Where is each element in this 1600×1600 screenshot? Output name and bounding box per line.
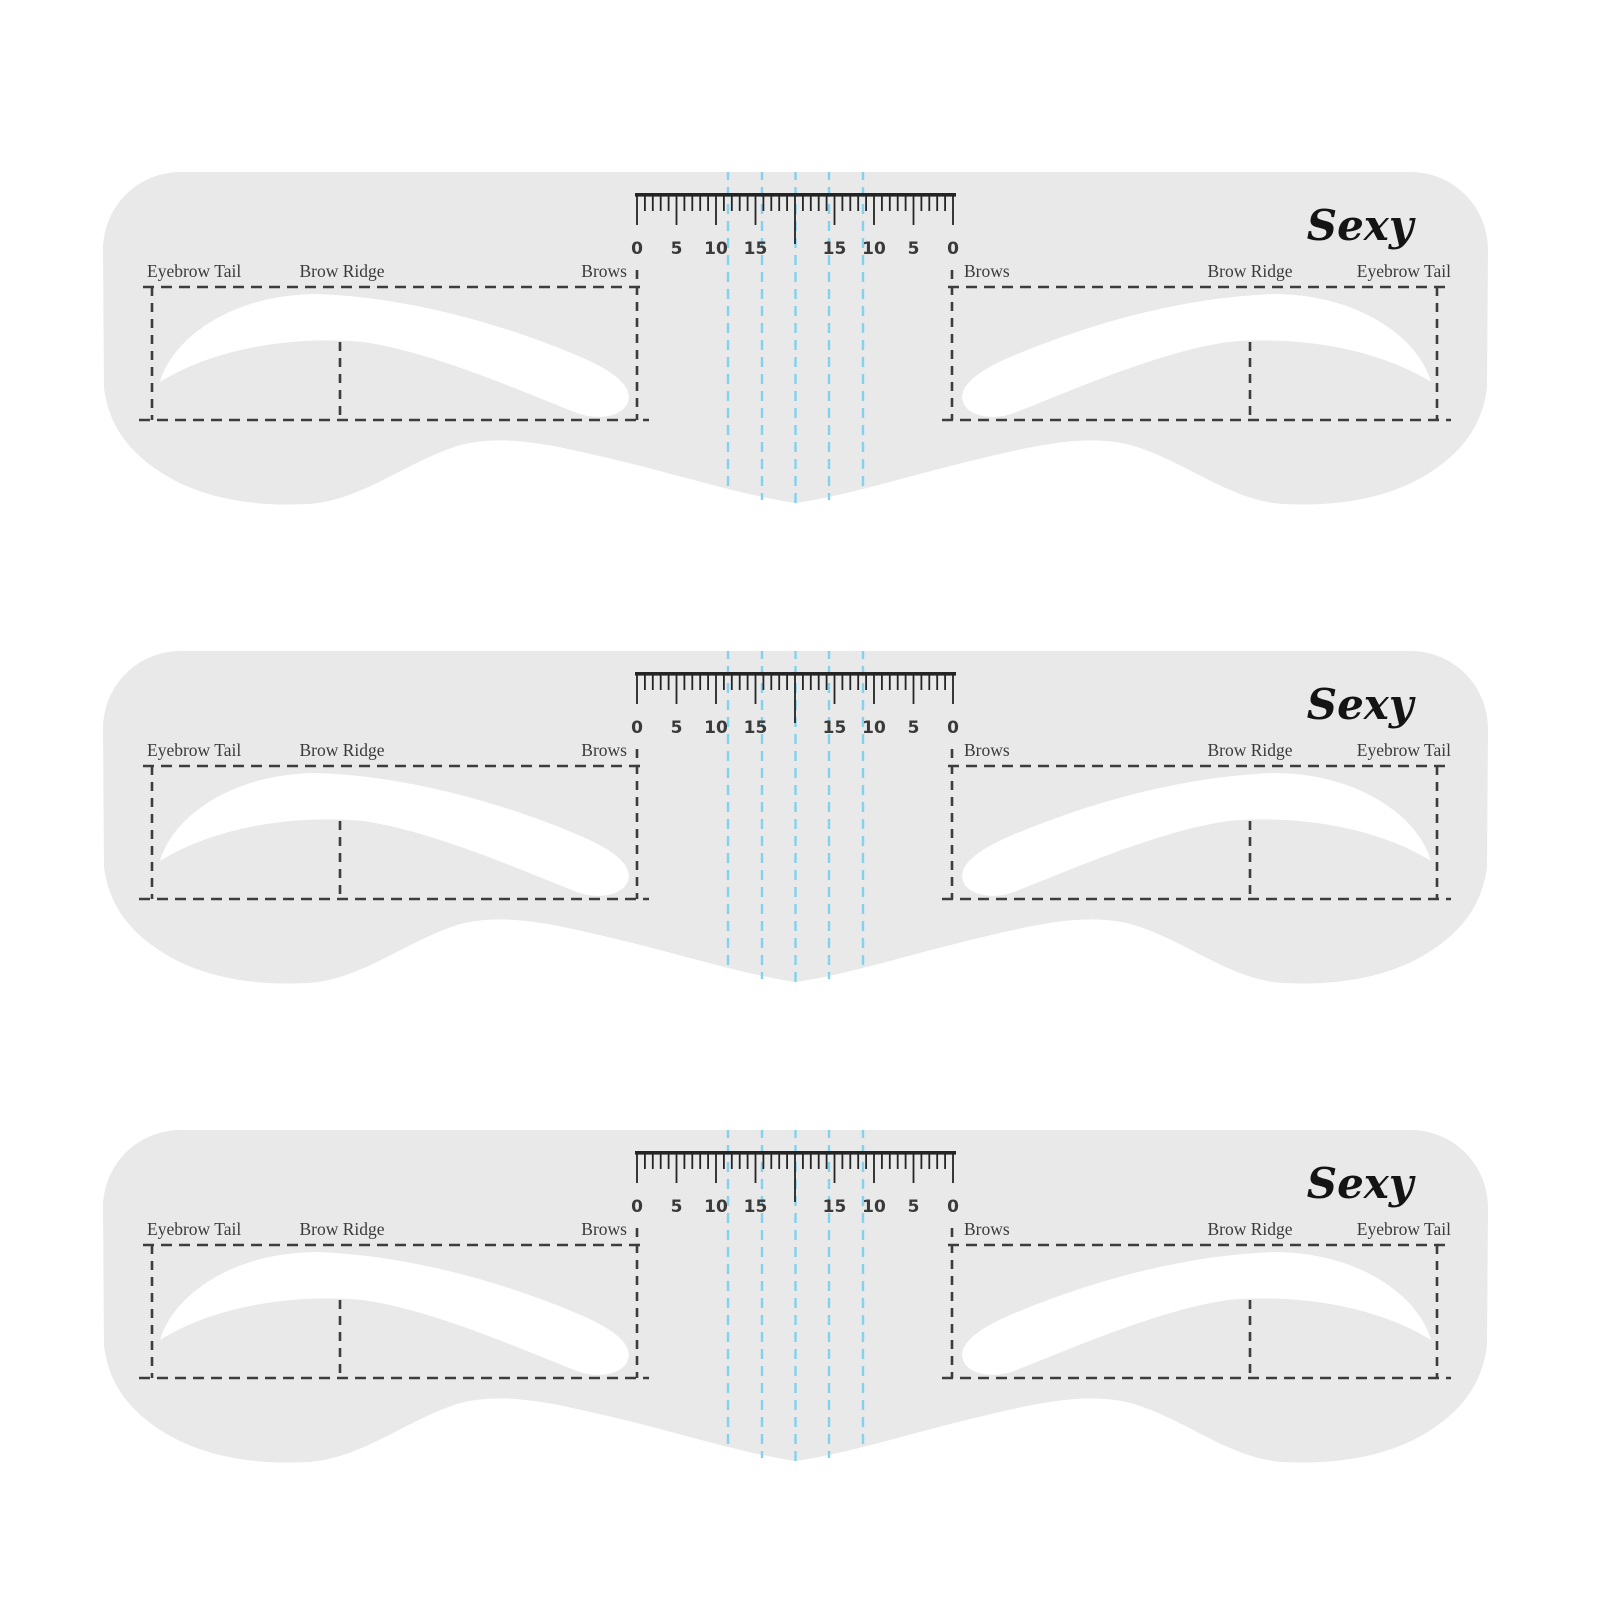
ruler-tick-label: 0: [947, 1197, 959, 1217]
ruler-tick-label: 5: [671, 1197, 683, 1217]
label-brows-right: Brows: [964, 261, 1010, 281]
ruler-tick-label: 15: [823, 1197, 847, 1217]
brand-logo: Sexy: [1307, 680, 1416, 729]
product-image-canvas: 051015151050 Eyebrow TailBrow RidgeBrows…: [0, 0, 1600, 1600]
stencil-sheet-1: 051015151050 Eyebrow TailBrow RidgeBrows…: [103, 172, 1488, 507]
label-brows-right: Brows: [964, 1219, 1010, 1239]
ruler-tick-label: 10: [862, 239, 886, 259]
label-eyebrow-tail-right: Eyebrow Tail: [1357, 740, 1451, 760]
ruler-tick-label: 0: [631, 239, 643, 259]
ruler-tick-label: 10: [862, 718, 886, 738]
ruler-tick-label: 15: [744, 1197, 768, 1217]
label-eyebrow-tail-left: Eyebrow Tail: [147, 740, 241, 760]
ruler-tick-label: 10: [704, 1197, 728, 1217]
stencil-sheet-graphic: 051015151050 Eyebrow TailBrow RidgeBrows…: [103, 172, 1488, 507]
label-brow-ridge-right: Brow Ridge: [1207, 261, 1292, 281]
ruler-tick-label: 10: [862, 1197, 886, 1217]
ruler-tick-label: 0: [631, 1197, 643, 1217]
ruler-tick-label: 0: [947, 718, 959, 738]
ruler-tick-label: 0: [631, 718, 643, 738]
stencil-sheet-graphic: 051015151050 Eyebrow TailBrow RidgeBrows…: [103, 651, 1488, 986]
ruler-tick-label: 5: [908, 239, 920, 259]
stencil-sheet-3: 051015151050 Eyebrow TailBrow RidgeBrows…: [103, 1130, 1488, 1465]
brand-logo: Sexy: [1307, 201, 1416, 250]
label-brows-right: Brows: [964, 740, 1010, 760]
label-brow-ridge-left: Brow Ridge: [299, 1219, 384, 1239]
ruler-tick-label: 15: [744, 718, 768, 738]
stencil-sheet-2: 051015151050 Eyebrow TailBrow RidgeBrows…: [103, 651, 1488, 986]
label-brows-left: Brows: [581, 740, 627, 760]
brand-logo: Sexy: [1307, 1159, 1416, 1208]
label-brows-left: Brows: [581, 1219, 627, 1239]
label-eyebrow-tail-right: Eyebrow Tail: [1357, 261, 1451, 281]
ruler-tick-label: 15: [744, 239, 768, 259]
label-brows-left: Brows: [581, 261, 627, 281]
stencil-sheet-graphic: 051015151050 Eyebrow TailBrow RidgeBrows…: [103, 1130, 1488, 1465]
ruler-tick-label: 5: [908, 1197, 920, 1217]
label-brow-ridge-left: Brow Ridge: [299, 740, 384, 760]
ruler-tick-label: 10: [704, 718, 728, 738]
ruler-tick-label: 5: [908, 718, 920, 738]
label-eyebrow-tail-left: Eyebrow Tail: [147, 1219, 241, 1239]
ruler-tick-label: 15: [823, 718, 847, 738]
ruler-tick-label: 0: [947, 239, 959, 259]
label-eyebrow-tail-left: Eyebrow Tail: [147, 261, 241, 281]
ruler-tick-label: 5: [671, 239, 683, 259]
label-brow-ridge-left: Brow Ridge: [299, 261, 384, 281]
ruler-tick-label: 5: [671, 718, 683, 738]
ruler-tick-label: 15: [823, 239, 847, 259]
label-eyebrow-tail-right: Eyebrow Tail: [1357, 1219, 1451, 1239]
ruler-tick-label: 10: [704, 239, 728, 259]
label-brow-ridge-right: Brow Ridge: [1207, 1219, 1292, 1239]
label-brow-ridge-right: Brow Ridge: [1207, 740, 1292, 760]
